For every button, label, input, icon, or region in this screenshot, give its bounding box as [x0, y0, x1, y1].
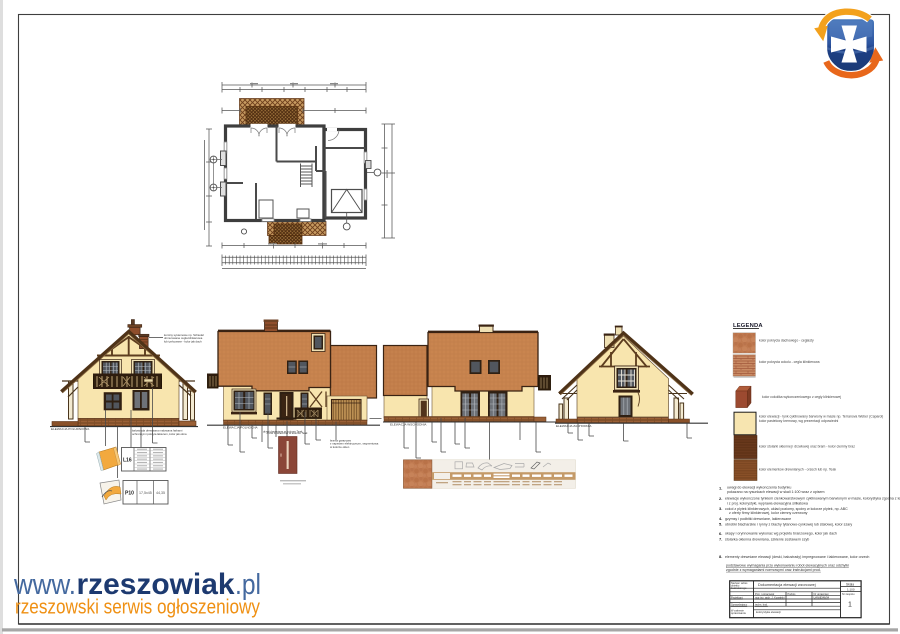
svg-text:elewacje wykonczone tynkiem ci: elewacje wykonczone tynkiem cienkowarstw…	[725, 497, 900, 501]
svg-text:w kolorze okien: w kolorze okien	[330, 445, 350, 449]
svg-text:5.: 5.	[719, 522, 722, 527]
svg-text:podstawowe wymagania przy wyko: podstawowe wymagania przy wykonywaniu ro…	[726, 563, 849, 567]
svg-text:UAN/8346/94: UAN/8346/94	[814, 595, 830, 599]
svg-text:kolorystyka elewacji: kolorystyka elewacji	[756, 610, 781, 614]
svg-text:ochronnymi pokryta lakierem, k: ochronnymi pokryta lakierem, kolor jak o…	[132, 432, 187, 436]
svg-text:opracowania: opracowania	[731, 611, 746, 615]
svg-text:1:100: 1:100	[847, 588, 855, 592]
svg-text:P10: P10	[125, 491, 134, 497]
svg-text:kolor elementow drewnianych -: kolor elementow drewnianych - orzech lub…	[759, 468, 836, 472]
svg-text:Proj. i opracowal: Proj. i opracowal	[755, 592, 775, 596]
svg-text:uwagi do elewacji wykonczenia: uwagi do elewacji wykonczenia budynku	[727, 486, 791, 490]
svg-text:8.: 8.	[719, 554, 722, 559]
svg-text:6.: 6.	[719, 531, 722, 536]
svg-text:L16: L16	[123, 458, 132, 464]
svg-text:kolor stolarki okiennej i drzw: kolor stolarki okiennej i drzwiowej oraz…	[759, 445, 855, 449]
svg-text:lub tynkowane - kolor jak dach: lub tynkowane - kolor jak dach	[164, 339, 202, 343]
svg-text:zgodnie z wymaganiami normowym: zgodnie z wymaganiami normowymi oraz ins…	[726, 568, 821, 572]
svg-text:gzymsy i podbitki drewniane, l: gzymsy i podbitki drewniane, lakierowane	[725, 517, 791, 521]
svg-text:3.: 3.	[719, 506, 722, 511]
svg-text:elementy drewniane elewacji (d: elementy drewniane elewacji (deski, balu…	[725, 555, 869, 559]
svg-text:kolor elewacji - tynk cyklinow: kolor elewacji - tynk cyklinowany barwio…	[759, 415, 883, 419]
svg-text:4.: 4.	[719, 516, 722, 521]
svg-text:mgr inz. arch. J. Kowalski: mgr inz. arch. J. Kowalski	[755, 595, 785, 599]
svg-text:Podpis: Podpis	[788, 592, 797, 596]
svg-text:1: 1	[848, 602, 852, 609]
svg-text:Projektant: Projektant	[731, 595, 743, 599]
svg-text:Skala: Skala	[846, 582, 854, 586]
svg-text:techn. bud.: techn. bud.	[755, 603, 768, 607]
svg-text:rzeszowski serwis ogłoszeniowy: rzeszowski serwis ogłoszeniowy	[15, 596, 261, 619]
svg-text:7.: 7.	[719, 537, 722, 542]
svg-text:budowlanego: budowlanego	[731, 586, 747, 590]
svg-text:44,35: 44,35	[156, 491, 165, 495]
svg-text:1.: 1.	[719, 486, 722, 491]
svg-text:kolor pokrycia cokolu - cegla: kolor pokrycia cokolu - cegla klinkierow…	[759, 360, 820, 364]
svg-text:okapy i orynnowanie wykonac wg: okapy i orynnowanie wykonac wg projektu …	[725, 532, 837, 536]
svg-text:stolarka okienna drewniana, sz: stolarka okienna drewniana, szklenie zes…	[725, 537, 809, 541]
svg-text:kolor cokolika wykonczeniowego: kolor cokolika wykonczeniowego z cegly k…	[762, 395, 841, 399]
svg-text:pokazano na rysunkach elewacji: pokazano na rysunkach elewacji w skali 1…	[727, 490, 824, 494]
svg-text:obrobki blacharskie i rynny z: obrobki blacharskie i rynny z blachy tyt…	[725, 522, 852, 526]
svg-text:drzwi zewnetrzne w kolorze Tea: drzwi zewnetrzne w kolorze Teak	[267, 431, 308, 435]
svg-text:ELEWACJA POLUDNIOWA: ELEWACJA POLUDNIOWA	[51, 427, 90, 431]
svg-text:kolor pokrycia dachowego - ceg: kolor pokrycia dachowego - ceglasty	[759, 339, 814, 343]
svg-text:ELEWACJA POLNOCNA: ELEWACJA POLNOCNA	[223, 426, 259, 430]
svg-text:Sprawdzajacy: Sprawdzajacy	[731, 603, 748, 607]
svg-text:Nr zespolu: Nr zespolu	[842, 592, 855, 596]
svg-text:ELEWACJA ZACHODNIA: ELEWACJA ZACHODNIA	[556, 424, 592, 428]
svg-text:kolor pastelowy kremowy, wg pr: kolor pastelowy kremowy, wg prezentacji …	[759, 419, 839, 423]
svg-text:i z proj. kolorystyki, wyprawa: i z proj. kolorystyki, wyprawa elewacyjn…	[727, 501, 808, 505]
svg-text:z oferty firmy klinkierowej, k: z oferty firmy klinkierowej, kolor ciemn…	[729, 511, 808, 515]
svg-text:17,5x45: 17,5x45	[139, 491, 152, 495]
svg-text:2.: 2.	[719, 496, 722, 501]
svg-text:cokol z plytek klinkierowych,: cokol z plytek klinkierowych, uklad pozi…	[725, 507, 848, 511]
svg-text:Nr uprawnien: Nr uprawnien	[814, 592, 830, 596]
svg-text:ELEWACJA WSCHODNIA: ELEWACJA WSCHODNIA	[390, 423, 427, 427]
svg-text:Dokumentacja elewacji wzorcowe: Dokumentacja elewacji wzorcowej	[758, 583, 816, 587]
